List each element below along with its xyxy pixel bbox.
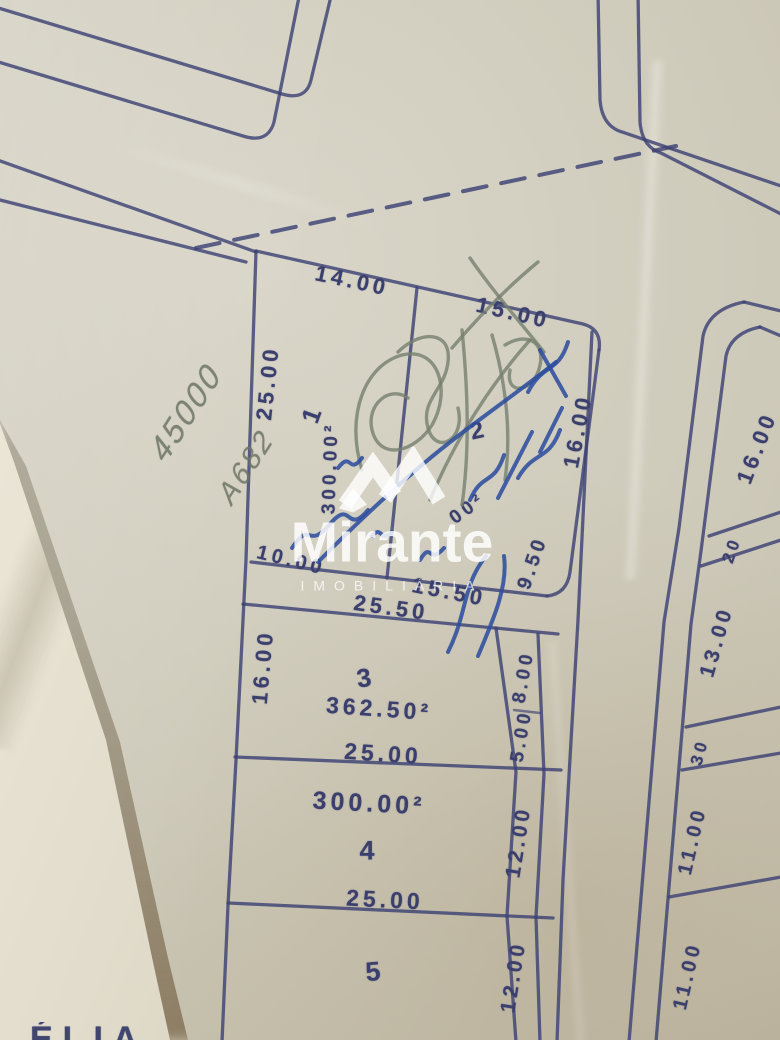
plat-map-photo: 14.00 15.00 25.00 1 300.00² 2 00² 16.00 … [0, 0, 780, 1040]
clipped-handwriting-text: ÉLIA [30, 1022, 180, 1040]
green-pencil-scribble [356, 258, 544, 505]
clipped-handwriting: ÉLIA [30, 1022, 180, 1040]
